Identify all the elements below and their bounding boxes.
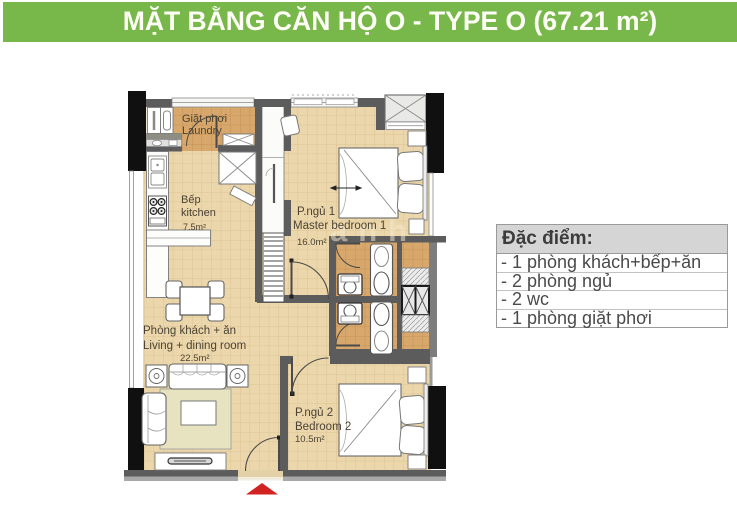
svg-text:Phòng khách + ăn: Phòng khách + ăn [143, 325, 236, 337]
svg-text:P.ngủ 2: P.ngủ 2 [295, 407, 333, 419]
svg-text:10.5m²: 10.5m² [295, 434, 325, 445]
svg-text:7.5m²: 7.5m² [183, 222, 206, 232]
svg-text:kitchen: kitchen [181, 207, 216, 219]
svg-text:16.0m²: 16.0m² [297, 237, 327, 248]
svg-text:Master bedroom 1: Master bedroom 1 [293, 220, 386, 232]
svg-text:22.5m²: 22.5m² [180, 353, 210, 364]
svg-text:Giặt phơi: Giặt phơi [182, 113, 227, 125]
svg-text:Bếp: Bếp [181, 194, 201, 206]
svg-text:Bedroom 2: Bedroom 2 [295, 421, 351, 433]
svg-text:Laundry: Laundry [182, 125, 222, 137]
svg-text:Living + dining room: Living + dining room [143, 340, 246, 352]
svg-text:P.ngủ 1: P.ngủ 1 [297, 206, 335, 218]
